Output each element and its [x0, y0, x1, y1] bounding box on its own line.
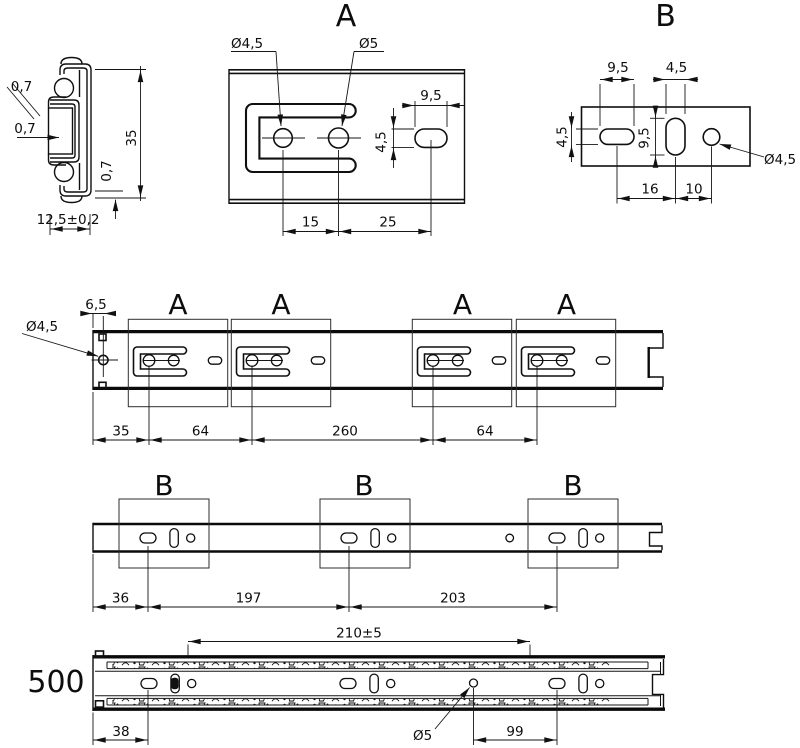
dim-end-hole-dia: Ø4,5 [26, 319, 58, 335]
callout-label-a: A [453, 288, 472, 321]
dim-197: 197 [236, 591, 262, 607]
callout-label-a: A [557, 288, 576, 321]
drawing-canvas: 0,7 0,7 0,7 35 12,5±0,2 A [0, 0, 800, 748]
dim-64-a: 64 [192, 424, 209, 440]
dim-b-dia: Ø4,5 [764, 152, 796, 168]
cross-section-view: 0,7 0,7 0,7 35 12,5±0,2 [7, 58, 146, 236]
dim-wall-web: 0,7 [14, 121, 35, 137]
v-slot [666, 118, 685, 155]
bottom-rivet [61, 196, 82, 203]
dim-b-vslot-length: 9,5 [637, 127, 653, 148]
slide-length-label: 500 [27, 665, 84, 700]
callout-label-a: A [271, 288, 290, 321]
dim-slot-width: 4,5 [374, 131, 390, 152]
dim-38: 38 [112, 724, 129, 740]
dim-slot-length: 9,5 [420, 88, 441, 104]
h-slot [600, 129, 634, 144]
ball-bearing-top [55, 79, 74, 98]
dim-wall-top: 0,7 [11, 79, 32, 95]
rivet [171, 678, 179, 689]
dim-section-width: 12,5±0,2 [37, 212, 100, 228]
ball-retainer-strip-bottom [112, 699, 610, 705]
hole-5-assembly [470, 679, 478, 687]
dim-260: 260 [332, 424, 358, 440]
dim-36: 36 [112, 591, 129, 607]
rail-b-view: B B B 36 197 203 [93, 469, 662, 612]
assembly-view: 500 210±5 [27, 626, 665, 746]
dim-35: 35 [112, 424, 129, 440]
dim-203: 203 [440, 591, 466, 607]
detail-b-callout-box [528, 499, 618, 568]
detail-b-title: B [655, 0, 676, 34]
dim-99: 99 [506, 724, 523, 740]
dim-b-slot-length: 9,5 [607, 60, 628, 76]
ball-retainer-strip-top [112, 662, 610, 668]
mount-tab [99, 334, 106, 341]
lone-hole [506, 534, 514, 542]
dim-64-b: 64 [476, 424, 493, 440]
dim-b-slot-height: 4,5 [555, 126, 571, 147]
dim-hole-spacing: 15 [302, 215, 319, 231]
technical-drawing-page: 0,7 0,7 0,7 35 12,5±0,2 A [0, 0, 800, 748]
mount-tab [96, 701, 104, 707]
detail-a-title: A [336, 0, 357, 34]
dim-spacing-10: 10 [685, 182, 702, 198]
top-rivet [61, 58, 82, 65]
dim-slot-spacing: 25 [379, 215, 396, 231]
dim-dia-small: Ø4,5 [231, 36, 263, 52]
hole-b [703, 129, 720, 146]
callout-label-a: A [168, 288, 187, 321]
dim-spacing-16: 16 [641, 182, 658, 198]
detail-b-view: B 9,5 4,5 4,5 9,5 Ø4,5 [555, 0, 797, 204]
callout-label-b: B [354, 469, 373, 502]
detail-b-callout-box [320, 499, 410, 568]
dim-edge-offset: 6,5 [85, 297, 106, 313]
dim-210: 210±5 [336, 626, 382, 642]
callout-label-b: B [563, 469, 582, 502]
rail-a-view: A A A A 6,5 Ø4,5 35 64 260 64 [22, 288, 663, 445]
dim-dia-large: Ø5 [359, 36, 378, 52]
dim-b-vslot-width: 4,5 [666, 60, 687, 76]
callout-label-b: B [154, 469, 173, 502]
dim-wall-bottom: 0,7 [99, 160, 115, 181]
detail-b-callout-box [119, 499, 209, 568]
detail-a-view: A Ø4,5 Ø5 9,5 [229, 0, 465, 236]
dim-section-height: 35 [124, 129, 140, 146]
dim-dia-5: Ø5 [413, 728, 432, 744]
